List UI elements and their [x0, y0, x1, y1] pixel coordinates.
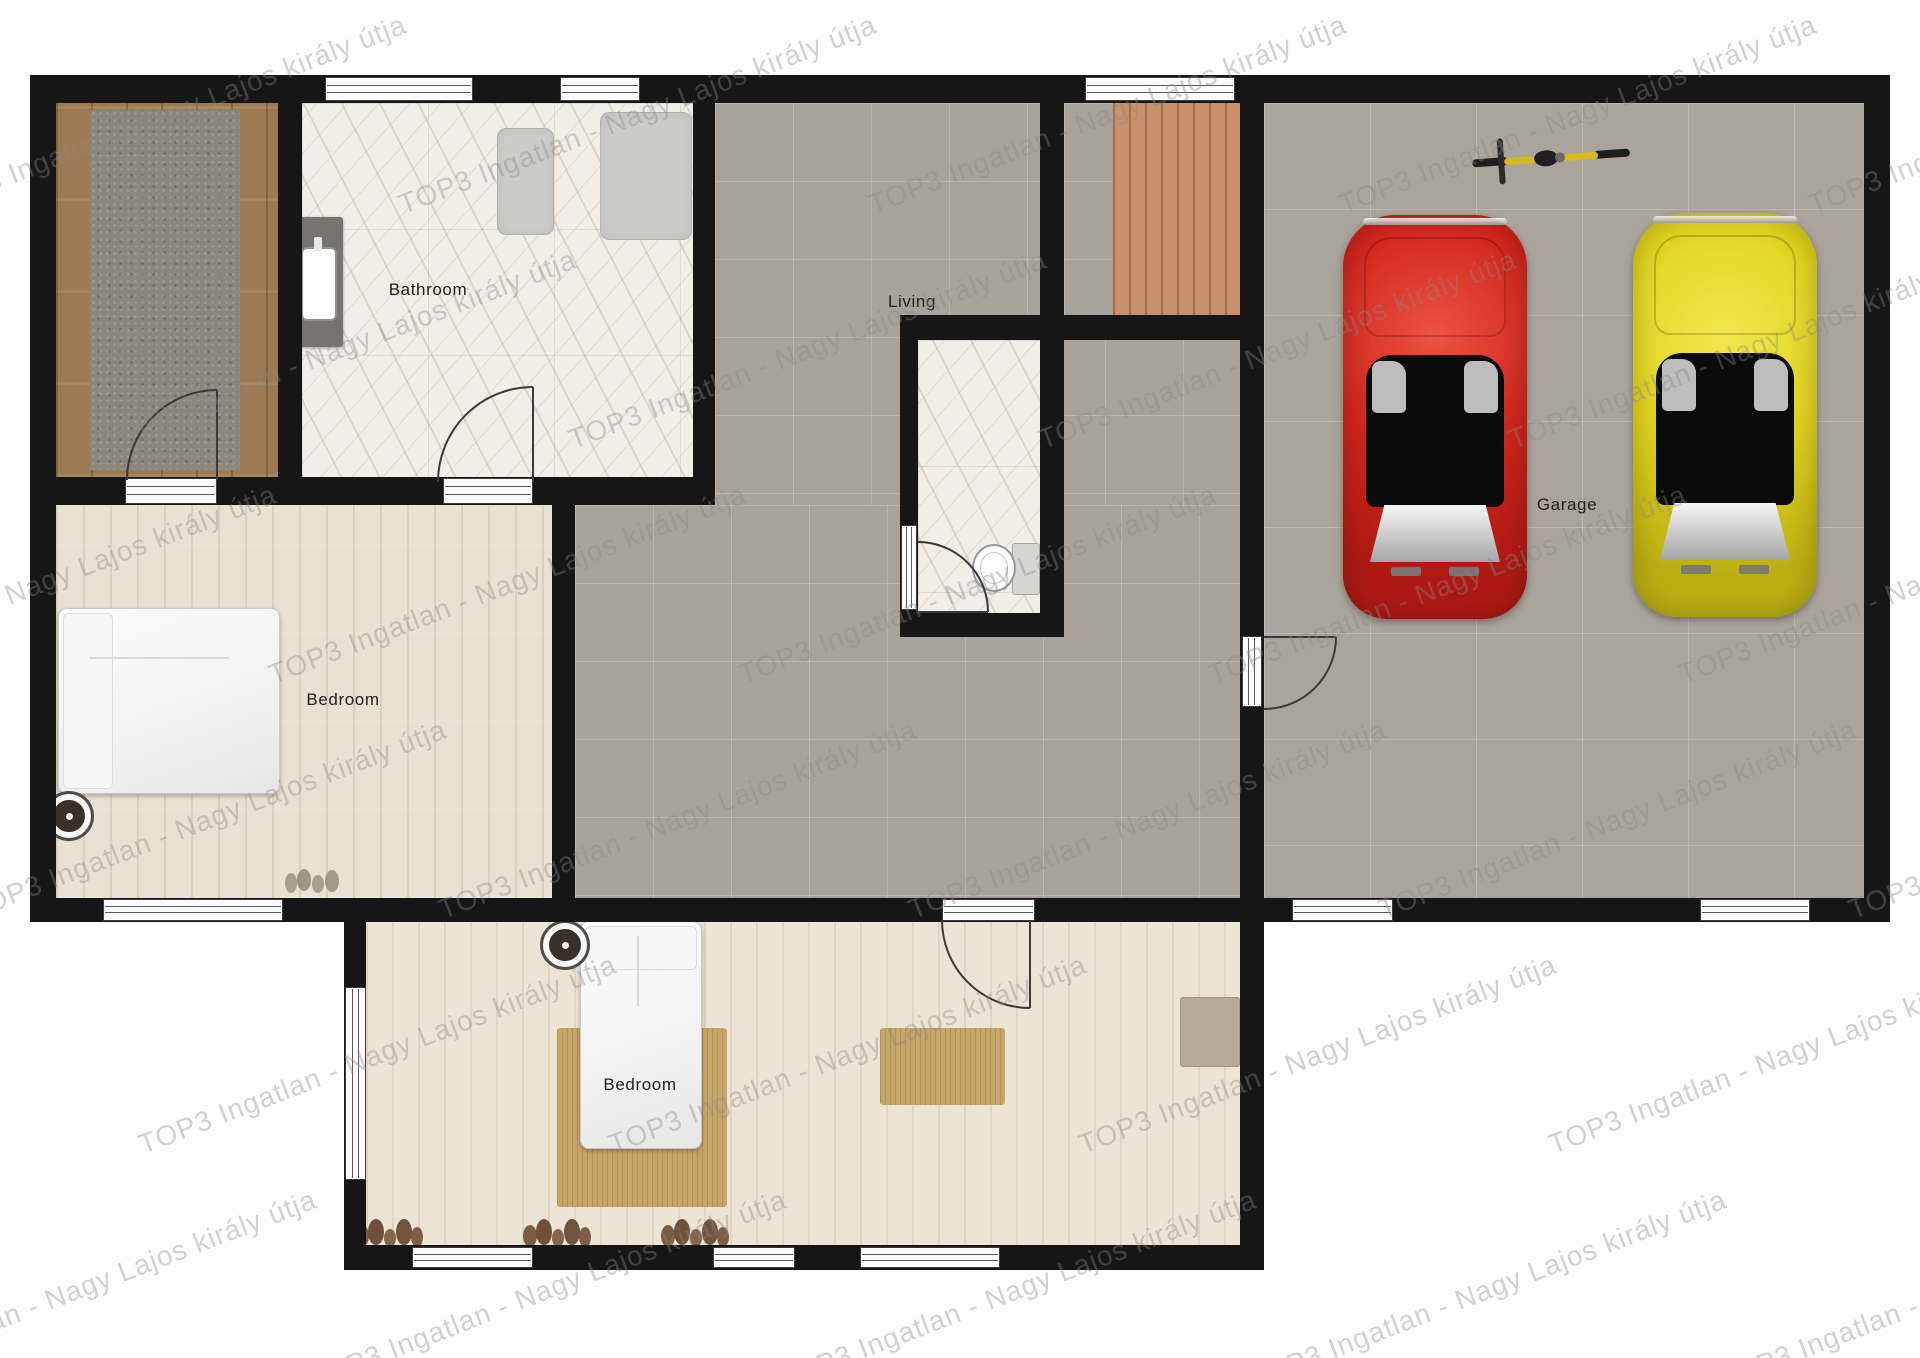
bicycle-icon	[1466, 120, 1635, 193]
car-trunk	[1364, 237, 1506, 337]
bed-fold-line	[637, 936, 639, 1006]
door-threshold-bedroom-bottom	[942, 899, 1035, 921]
door-threshold-wc	[901, 525, 917, 610]
room-label-living: Living	[888, 292, 936, 312]
window	[1292, 899, 1393, 921]
front-entry-threshold	[1085, 77, 1235, 101]
window	[713, 1247, 795, 1268]
watermark-text: TOP3 Ingatlan - Nagy Lajos király útja	[1544, 949, 1920, 1161]
car-icon-yellow	[1633, 213, 1817, 617]
porch-floor	[1064, 103, 1113, 315]
plant-icon	[282, 868, 344, 896]
watermark-text: TOP3 Ingatlan - Nagy Lajos király útja	[0, 1184, 321, 1358]
hall-runner-rug	[90, 110, 240, 470]
toilet-tank-icon	[1012, 543, 1040, 595]
car-cabin	[1656, 353, 1794, 505]
shower-tray-icon	[600, 112, 692, 240]
window	[325, 77, 473, 101]
window	[1700, 899, 1810, 921]
wall	[1240, 103, 1264, 922]
wall	[900, 613, 1064, 637]
door-threshold-bathroom	[443, 478, 533, 504]
wall	[552, 505, 575, 898]
bedroom-door-mat-icon	[880, 1028, 1005, 1105]
wall	[30, 75, 1890, 103]
car-trunk	[1654, 235, 1796, 335]
sink-basin-icon	[301, 247, 337, 321]
bed-fold-line	[89, 657, 229, 659]
window	[412, 1247, 533, 1268]
car-windshield	[1370, 505, 1500, 562]
door-threshold-garage	[1242, 636, 1262, 707]
car-hood-vent	[1681, 565, 1711, 574]
room-label-bathroom: Bathroom	[389, 280, 468, 300]
window	[860, 1247, 1000, 1268]
car-hood-vent	[1449, 567, 1479, 576]
floor-plan-canvas: Bathroom Living Garage Bedroom Bedroom T…	[0, 0, 1920, 1358]
room-label-garage: Garage	[1537, 495, 1597, 515]
watermark-text: TOP3 Ingatlan - Nagy Lajos király útja	[1244, 1184, 1731, 1358]
sink-tap-icon	[314, 237, 322, 251]
car-icon-red	[1343, 215, 1527, 619]
car-hood-vent	[1391, 567, 1421, 576]
bed-icon-bottom-bedroom	[580, 921, 702, 1149]
wall	[278, 103, 302, 477]
window	[560, 77, 640, 101]
pillow-icon	[63, 613, 113, 789]
room-floor-bedroom-bottom	[366, 922, 1240, 1245]
car-cabin	[1366, 355, 1504, 507]
car-bumper	[1363, 218, 1507, 225]
wall	[1240, 898, 1264, 1270]
wall	[1864, 75, 1890, 922]
room-label-bedroom-bottom: Bedroom	[603, 1075, 676, 1095]
door-threshold-hall-bedroom	[125, 478, 217, 504]
window	[103, 899, 283, 921]
wall	[693, 103, 715, 505]
dresser-icon	[1180, 997, 1240, 1067]
bathroom-cabinet-icon	[497, 128, 554, 235]
robot-vacuum-icon	[543, 923, 587, 967]
car-hood-vent	[1739, 565, 1769, 574]
toilet-bowl-icon	[972, 544, 1016, 592]
car-bumper	[1653, 216, 1797, 223]
wall	[900, 315, 1264, 340]
bed-icon-left-bedroom	[58, 608, 280, 794]
window	[345, 987, 366, 1180]
room-label-bedroom-left: Bedroom	[306, 690, 379, 710]
car-windshield	[1660, 503, 1790, 560]
wall	[1040, 103, 1064, 637]
porch-deck-icon	[1113, 103, 1240, 315]
watermark-text: TOP3 Ingatlan - Nagy Lajos király útja	[1714, 1184, 1920, 1358]
pillow-icon	[585, 926, 697, 970]
